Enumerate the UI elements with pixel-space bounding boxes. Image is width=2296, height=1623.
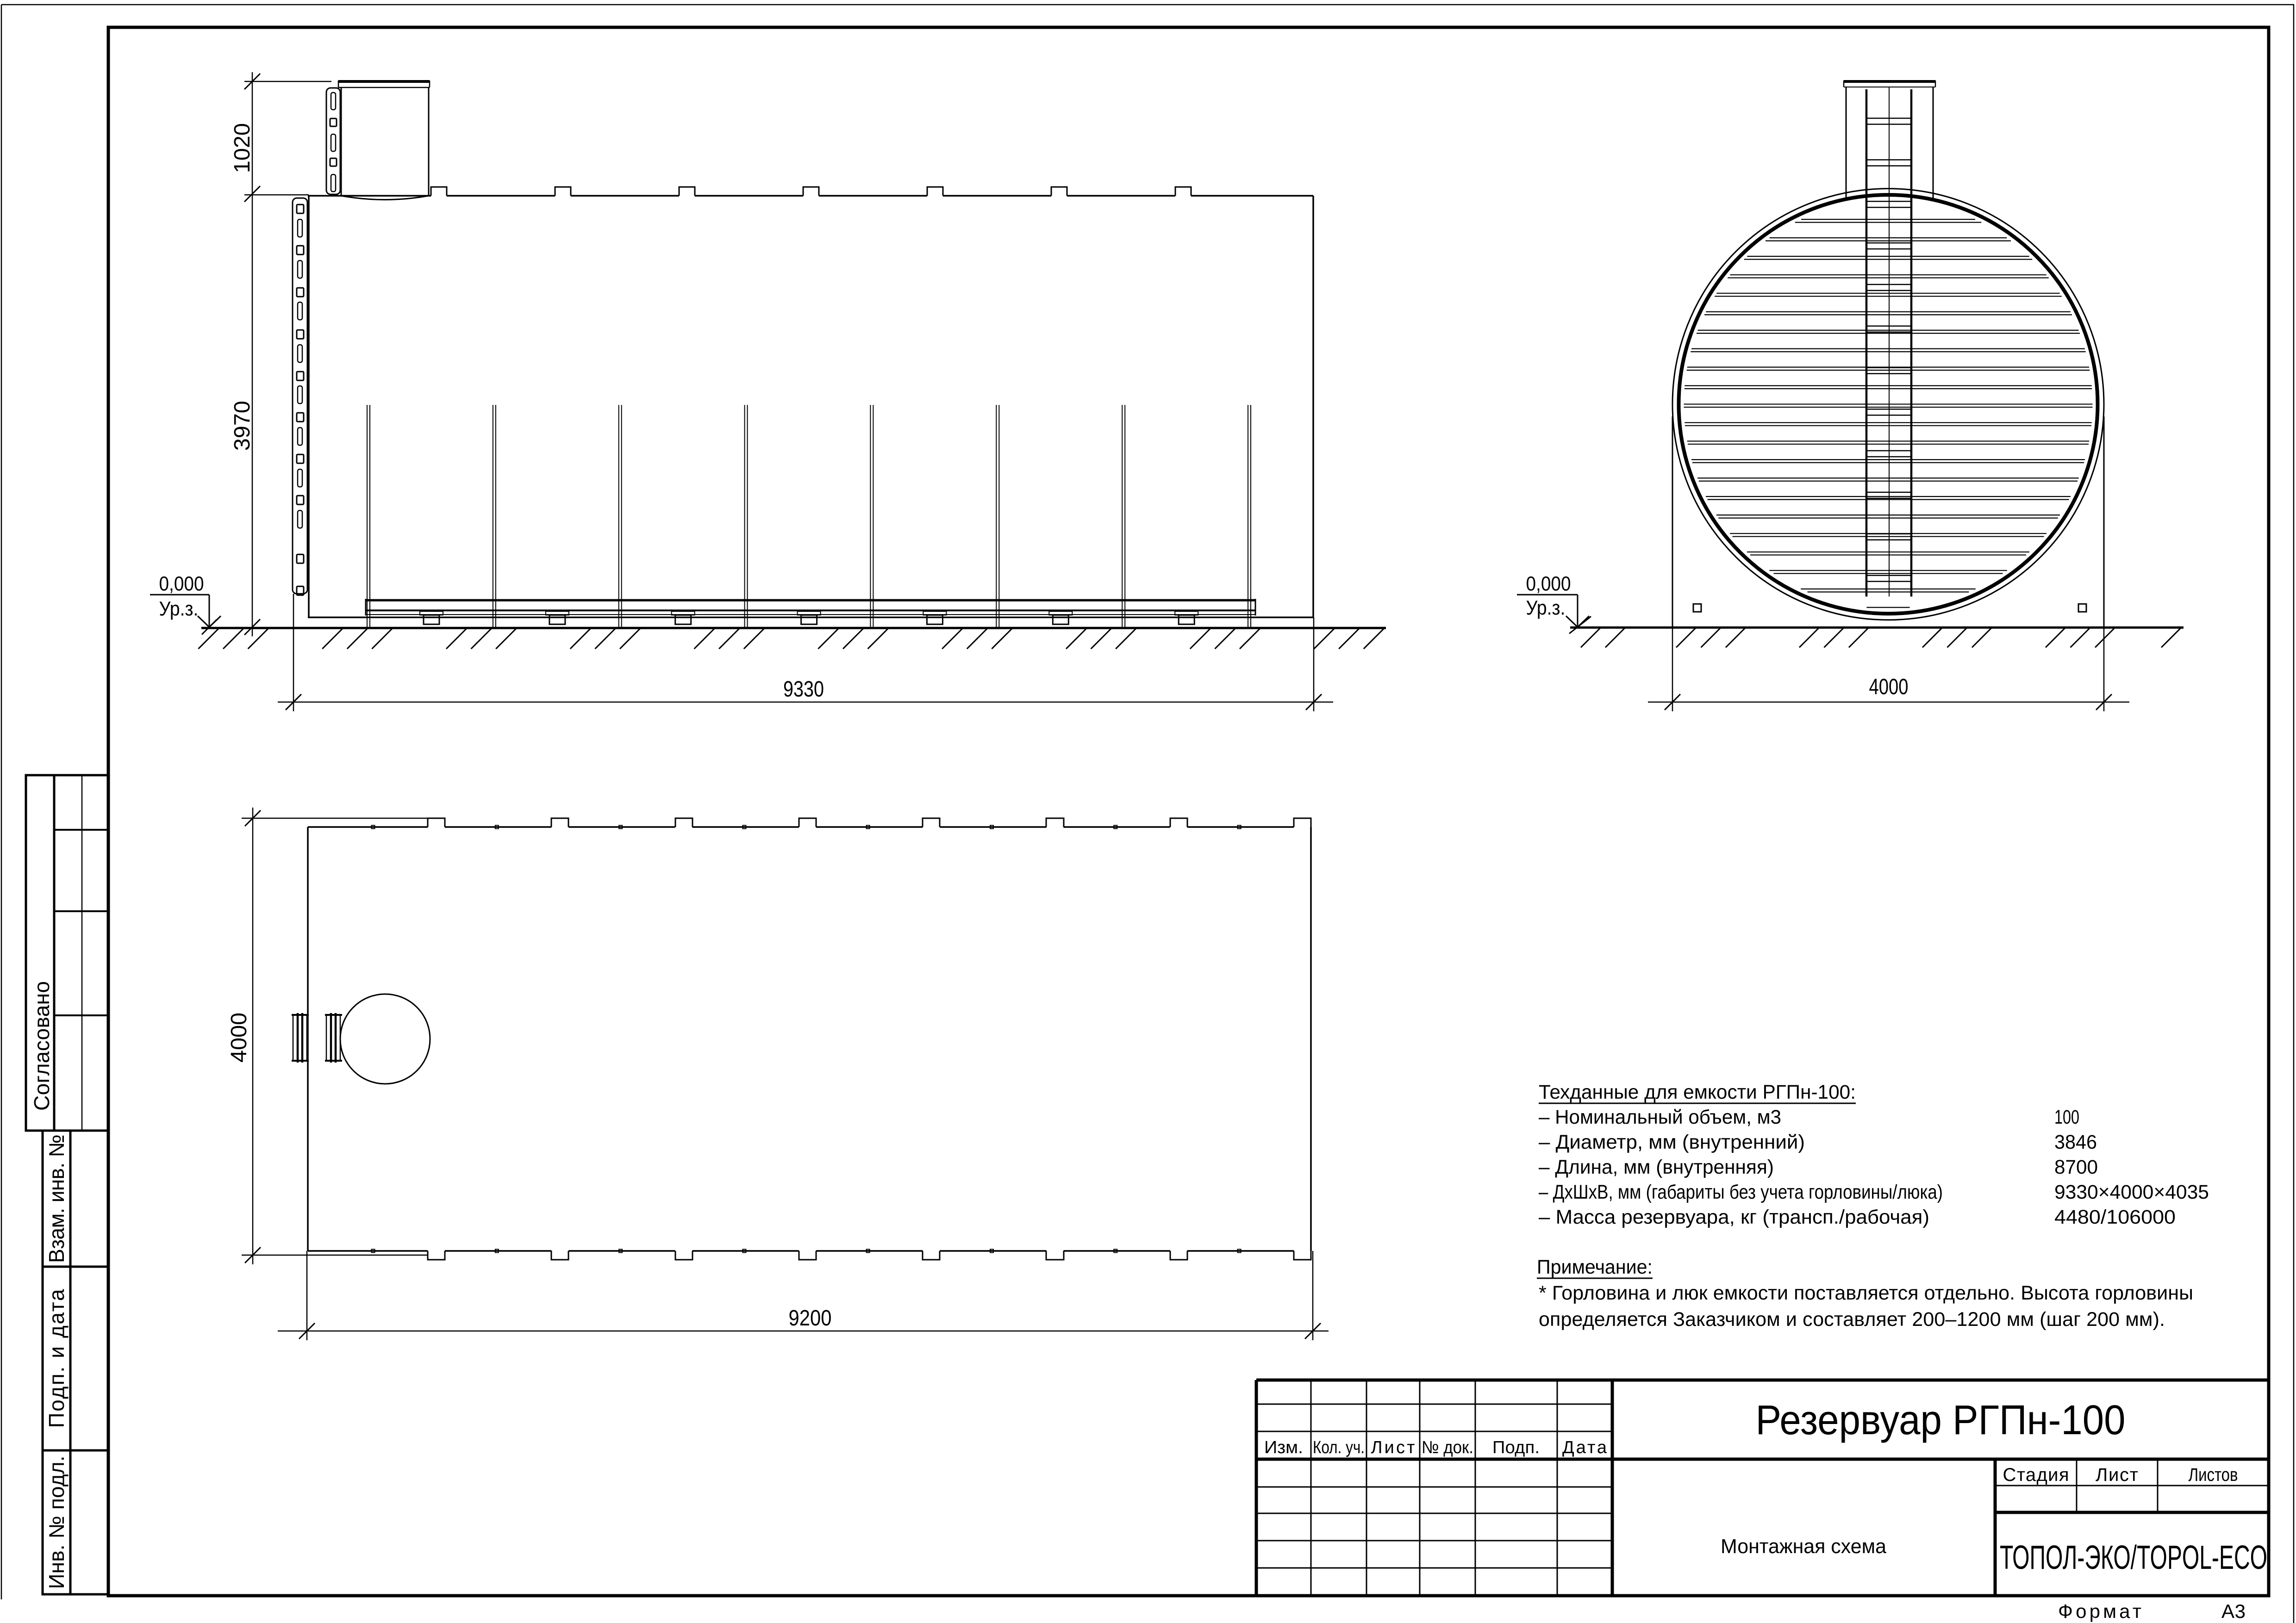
svg-text:Резервуар РГПн-100: Резервуар РГПн-100 [1756, 1397, 2126, 1443]
svg-text:Дата: Дата [1562, 1438, 1607, 1457]
svg-text:9330: 9330 [783, 677, 824, 702]
svg-text:3970: 3970 [230, 401, 255, 451]
svg-text:Ур.з.: Ур.з. [159, 597, 199, 620]
svg-text:Стадия: Стадия [2003, 1465, 2069, 1485]
svg-text:Кол. уч.: Кол. уч. [1313, 1438, 1365, 1457]
svg-text:Листов: Листов [2189, 1465, 2238, 1485]
svg-text:4480/106000: 4480/106000 [2054, 1206, 2176, 1228]
svg-text:9200: 9200 [789, 1306, 832, 1331]
svg-text:4000: 4000 [1869, 675, 1909, 699]
svg-text:Подп.: Подп. [1492, 1438, 1540, 1457]
svg-text:Изм.: Изм. [1264, 1438, 1303, 1457]
svg-text:Инв. № подл.: Инв. № подл. [44, 1456, 69, 1589]
svg-text:0,000: 0,000 [1526, 572, 1571, 595]
svg-text:8700: 8700 [2054, 1156, 2098, 1178]
svg-text:Монтажная схема: Монтажная схема [1721, 1535, 1887, 1558]
svg-text:4000: 4000 [227, 1013, 251, 1063]
svg-text:Согласовано: Согласовано [30, 981, 54, 1111]
svg-text:– Диаметр, мм (внутренний): – Диаметр, мм (внутренний) [1539, 1131, 1805, 1153]
svg-text:Лист: Лист [1371, 1438, 1415, 1457]
svg-text:* Горловина и люк емкости пост: * Горловина и люк емкости поставляется о… [1539, 1282, 2193, 1304]
svg-text:– ДхШхВ, мм (габариты без учет: – ДхШхВ, мм (габариты без учета горловин… [1539, 1181, 1943, 1203]
svg-text:Техданные для емкости РГПн-100: Техданные для емкости РГПн-100: [1539, 1081, 1856, 1103]
svg-text:3846: 3846 [2054, 1131, 2097, 1153]
svg-text:Подп. и дата: Подп. и дата [44, 1289, 69, 1428]
svg-text:Взам. инв. №: Взам. инв. № [44, 1134, 69, 1263]
svg-text:Формат: Формат [2058, 1600, 2141, 1622]
svg-text:1020: 1020 [230, 123, 255, 173]
svg-text:ТОПОЛ-ЭКО/TOPOL-ECO: ТОПОЛ-ЭКО/TOPOL-ECO [2000, 1539, 2267, 1576]
svg-text:– Номинальный объем, м3: – Номинальный объем, м3 [1539, 1106, 1781, 1128]
svg-text:9330×4000×4035: 9330×4000×4035 [2054, 1181, 2209, 1203]
svg-text:Лист: Лист [2096, 1465, 2138, 1485]
svg-text:– Масса резервуара, кг (трансп: – Масса резервуара, кг (трансп./рабочая) [1539, 1206, 1929, 1228]
svg-text:100: 100 [2054, 1106, 2079, 1128]
svg-text:Примечание:: Примечание: [1537, 1256, 1653, 1278]
svg-text:Ур.з.: Ур.з. [1526, 597, 1566, 619]
svg-text:№ док.: № док. [1422, 1438, 1473, 1457]
svg-text:определяется Заказчиком и сост: определяется Заказчиком и составляет 200… [1539, 1308, 2165, 1331]
svg-text:А3: А3 [2221, 1600, 2246, 1622]
svg-text:– Длина, мм (внутренняя): – Длина, мм (внутренняя) [1539, 1156, 1774, 1178]
svg-text:0,000: 0,000 [159, 572, 204, 595]
